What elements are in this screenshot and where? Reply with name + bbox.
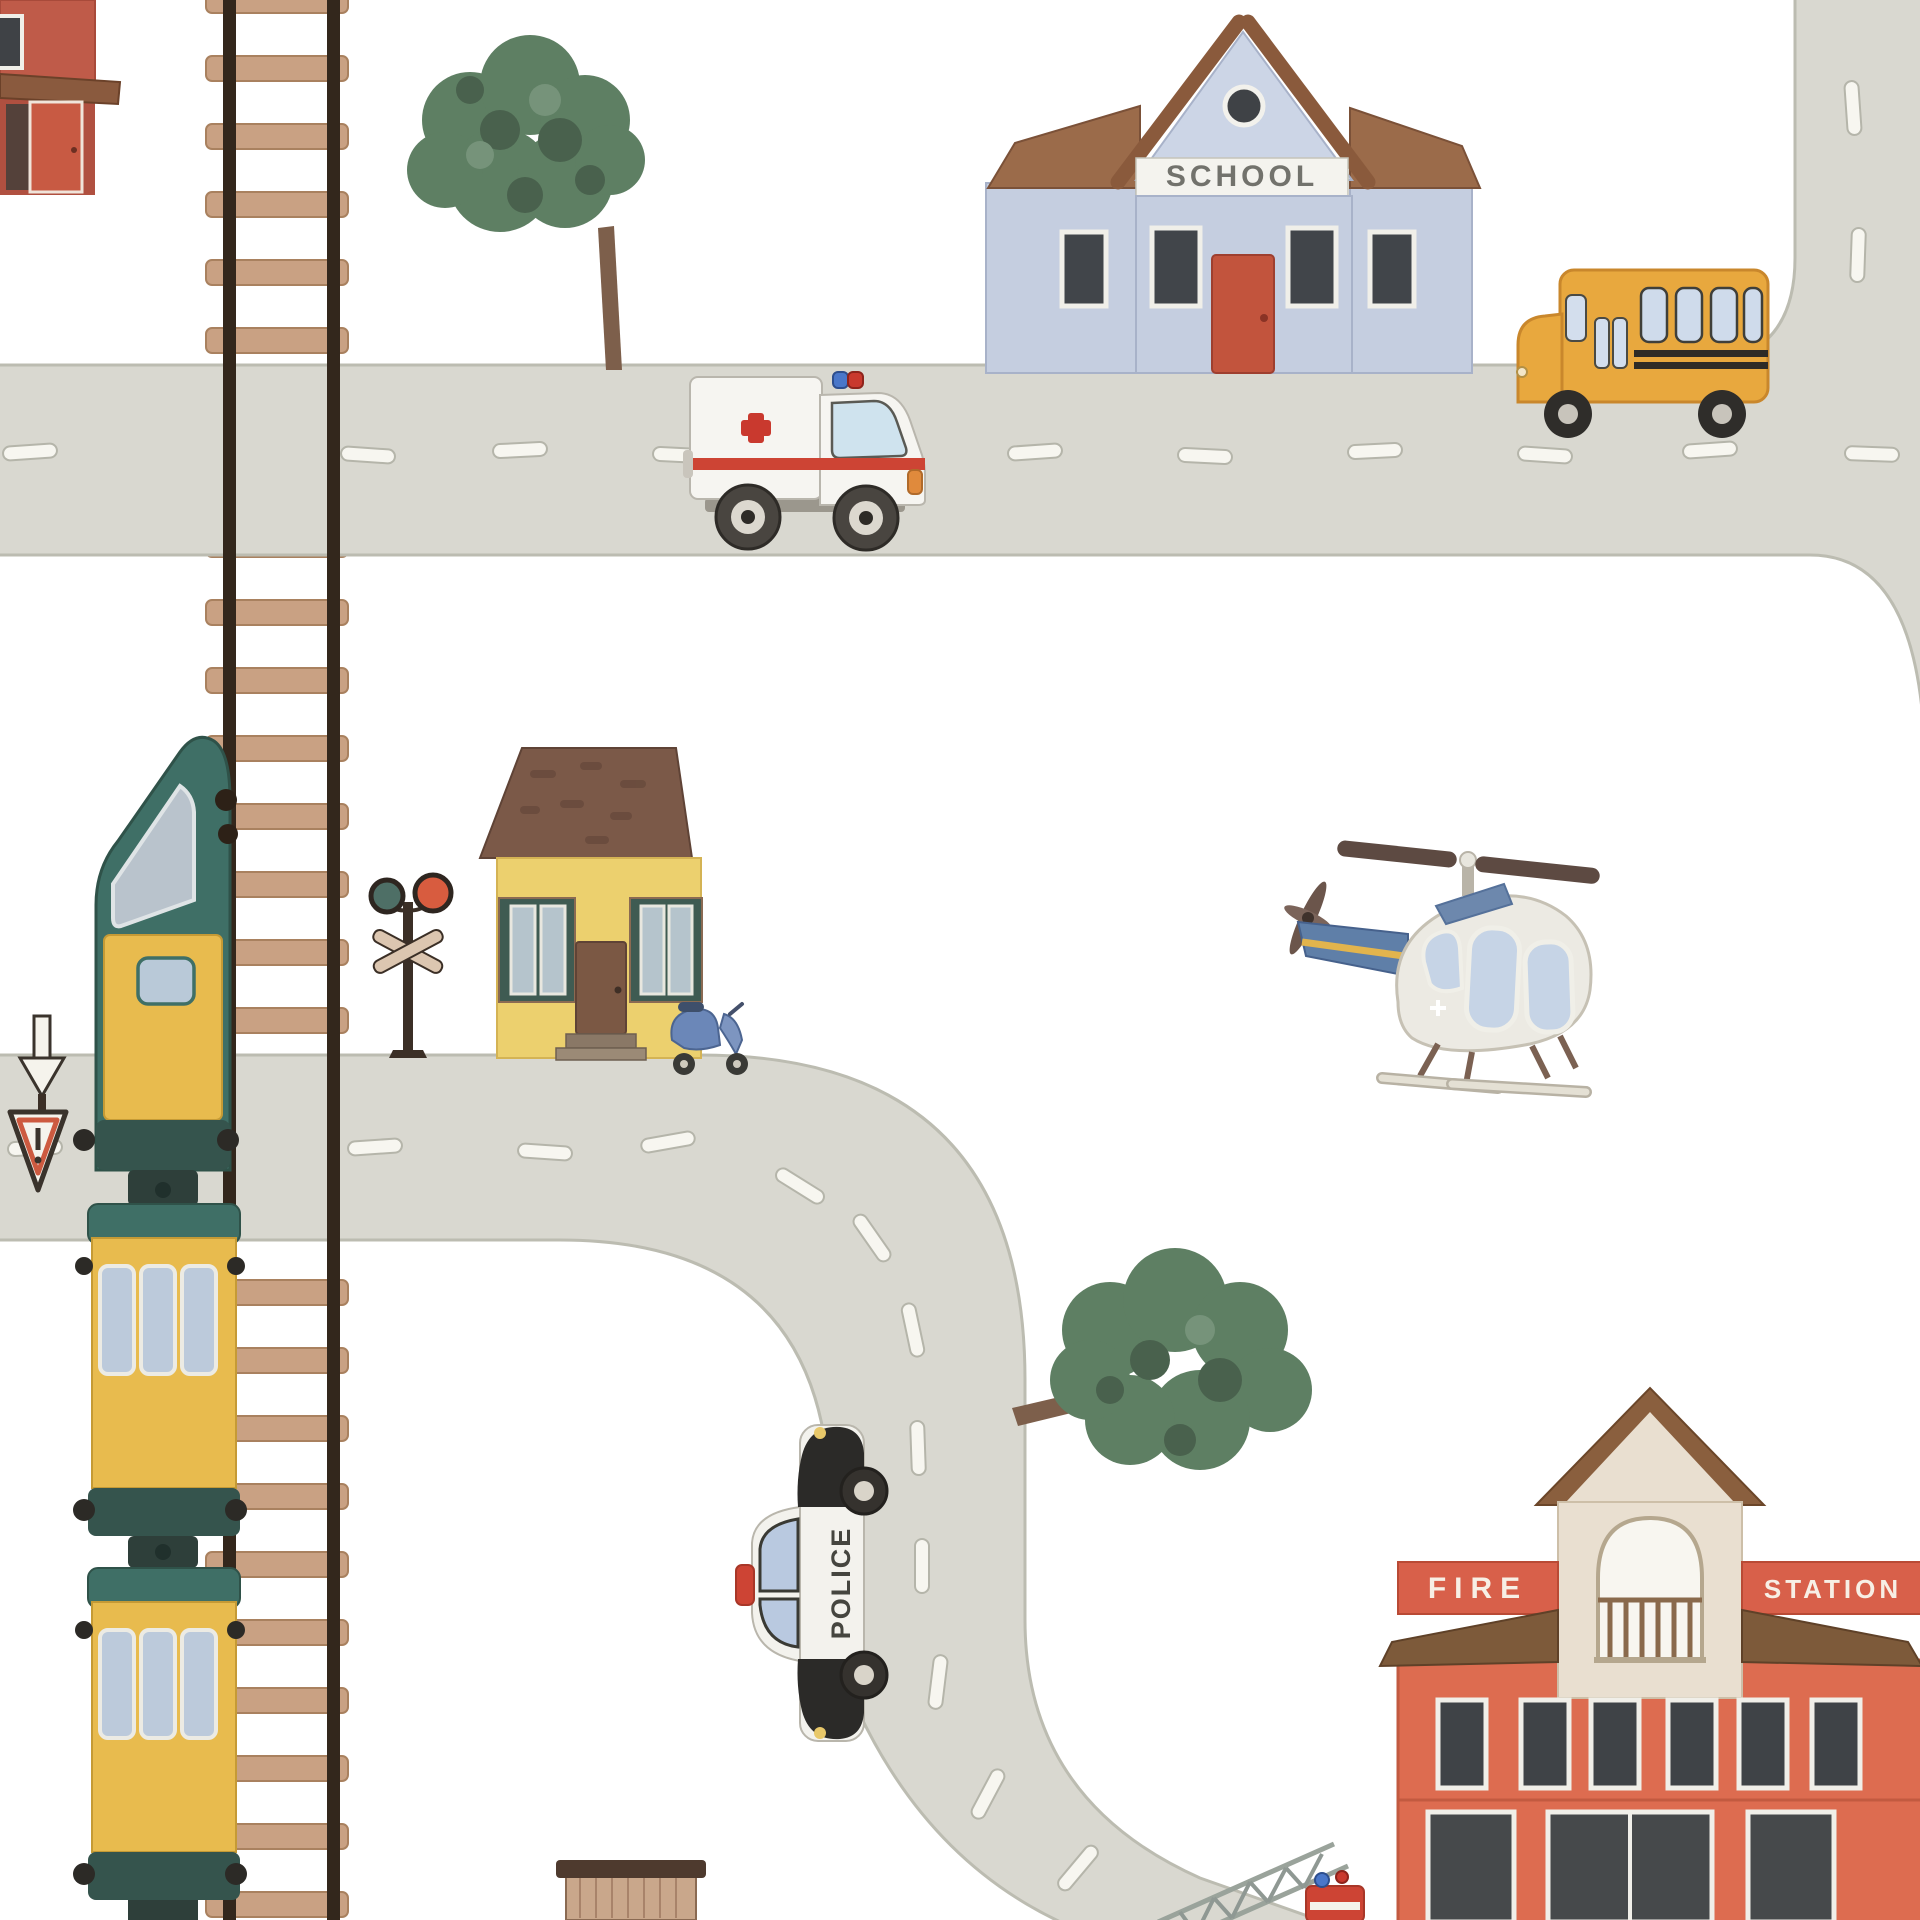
bus-stripe bbox=[1634, 362, 1768, 369]
exclamation-icon bbox=[35, 1157, 42, 1164]
signal-light-red bbox=[415, 875, 451, 911]
skid-strut bbox=[1420, 1044, 1438, 1076]
corner-building bbox=[0, 0, 120, 195]
bus-window bbox=[1641, 288, 1667, 342]
car-window bbox=[141, 1630, 175, 1738]
fire-station: FIRE STATION bbox=[1380, 1388, 1920, 1920]
skid-strut bbox=[1560, 1036, 1576, 1068]
train bbox=[73, 737, 247, 1920]
door-knob bbox=[615, 987, 622, 994]
scooter-handlebar bbox=[730, 1004, 742, 1014]
scooter-seat bbox=[678, 1002, 704, 1012]
front-blinker bbox=[908, 470, 922, 494]
main-rotor-blade bbox=[1336, 840, 1457, 868]
car-window bbox=[100, 1266, 134, 1374]
school-sign: SCHOOL bbox=[1166, 160, 1318, 193]
car-window bbox=[182, 1266, 216, 1374]
dark-doorway bbox=[6, 104, 32, 190]
bus-window bbox=[1676, 288, 1702, 342]
train-wheel bbox=[73, 1499, 95, 1521]
tree-canopy bbox=[407, 35, 645, 232]
wheel-hub bbox=[733, 1060, 741, 1068]
rail-knob bbox=[215, 789, 237, 811]
garage-door bbox=[1428, 1812, 1514, 1920]
rotor-cap bbox=[1460, 852, 1476, 868]
school-door bbox=[1212, 255, 1274, 373]
window-pane bbox=[641, 906, 664, 994]
wheel-hub bbox=[854, 1481, 874, 1501]
train-wheel bbox=[217, 1129, 239, 1151]
tree-canopy bbox=[1050, 1248, 1312, 1470]
round-attic-window bbox=[1225, 87, 1263, 125]
car-window bbox=[182, 1630, 216, 1738]
school-window bbox=[1152, 228, 1200, 306]
train-coupler-knob bbox=[155, 1544, 171, 1560]
truck-light-blue bbox=[1315, 1873, 1329, 1887]
rail-right bbox=[327, 0, 340, 1920]
rail-knob bbox=[218, 824, 238, 844]
yellow-house bbox=[480, 748, 702, 1060]
siren-light-blue bbox=[833, 372, 848, 388]
train-coupler bbox=[128, 1900, 198, 1920]
building-awning bbox=[0, 74, 120, 104]
car-window bbox=[100, 1630, 134, 1738]
helicopter bbox=[1281, 840, 1600, 1092]
city-map-canvas: SCHOOL bbox=[0, 0, 1920, 1920]
door-step bbox=[566, 1034, 636, 1048]
station-sign: STATION bbox=[1764, 1574, 1902, 1604]
bus-hood bbox=[1518, 314, 1562, 402]
main-rotor-blade bbox=[1475, 856, 1601, 885]
door-knob bbox=[71, 147, 77, 153]
car-skirt bbox=[88, 1852, 240, 1900]
police-car: POLICE bbox=[736, 1425, 887, 1741]
scooter-front-shield bbox=[720, 1014, 742, 1054]
wheel-hub bbox=[854, 1665, 874, 1685]
signal-base bbox=[389, 1050, 427, 1058]
round-tree bbox=[407, 35, 645, 370]
school-building: SCHOOL bbox=[986, 22, 1480, 373]
bus-stripe bbox=[1634, 350, 1768, 357]
rear-bumper bbox=[683, 450, 693, 478]
window-pane bbox=[511, 906, 535, 994]
wheel-center bbox=[741, 510, 755, 524]
awning-roof bbox=[1742, 1610, 1920, 1666]
cockpit-window bbox=[1524, 941, 1573, 1033]
signal-light-green bbox=[371, 880, 403, 912]
bus-window bbox=[1744, 288, 1762, 342]
car-skirt bbox=[88, 1488, 240, 1536]
shed-roof-cap bbox=[556, 1860, 706, 1878]
door-knob bbox=[1260, 314, 1268, 322]
door-step bbox=[556, 1048, 646, 1060]
awning-roof bbox=[1380, 1610, 1558, 1666]
wooden-shed bbox=[556, 1860, 706, 1920]
train-wheel bbox=[73, 1863, 95, 1885]
red-cross-icon bbox=[748, 413, 764, 443]
train-wheel bbox=[225, 1499, 247, 1521]
window-pane bbox=[541, 906, 565, 994]
tower-arched-window bbox=[1598, 1518, 1702, 1660]
scooter-body bbox=[671, 1009, 720, 1049]
bus-door-pane bbox=[1613, 318, 1627, 368]
building-door bbox=[30, 102, 82, 192]
wheel-center bbox=[859, 511, 873, 525]
train-wheel bbox=[225, 1863, 247, 1885]
bus-windshield bbox=[1566, 295, 1586, 341]
train-wheel bbox=[73, 1129, 95, 1151]
garage-door bbox=[1748, 1812, 1834, 1920]
locomotive-window bbox=[138, 958, 194, 1004]
train-wheel bbox=[75, 1257, 93, 1275]
bus-wheel-hub bbox=[1712, 404, 1732, 424]
train-coupler-knob bbox=[155, 1182, 171, 1198]
truck-light-red bbox=[1336, 1871, 1348, 1883]
police-taillight bbox=[814, 1727, 826, 1739]
bus-wheel-hub bbox=[1558, 404, 1578, 424]
arrow-shaft bbox=[34, 1016, 50, 1062]
skid-strut bbox=[1532, 1046, 1548, 1078]
car-window bbox=[141, 1266, 175, 1374]
railroad-crossing-signal bbox=[371, 875, 451, 1058]
locomotive-skirt bbox=[96, 1120, 230, 1170]
school-window bbox=[1288, 228, 1336, 306]
window-pane bbox=[669, 906, 692, 994]
bus-door-pane bbox=[1595, 318, 1609, 368]
siren-light-red bbox=[848, 372, 863, 388]
school-window bbox=[1062, 232, 1106, 306]
fire-sign: FIRE bbox=[1428, 1572, 1528, 1605]
train-wheel bbox=[75, 1621, 93, 1639]
city-map-illustration: SCHOOL bbox=[0, 0, 1920, 1920]
train-wheel bbox=[227, 1257, 245, 1275]
police-label: POLICE bbox=[826, 1527, 856, 1640]
bus-window bbox=[1711, 288, 1737, 342]
cockpit-window bbox=[1423, 931, 1462, 991]
ambulance-stripe bbox=[690, 458, 925, 470]
police-roof-light bbox=[736, 1565, 754, 1605]
leafy-tree bbox=[1012, 1248, 1312, 1470]
school-window bbox=[1370, 232, 1414, 306]
cockpit-window bbox=[1465, 927, 1520, 1031]
tree-trunk bbox=[598, 226, 622, 370]
police-headlight bbox=[814, 1427, 826, 1439]
fire-truck-stripe bbox=[1310, 1902, 1360, 1910]
building-window bbox=[0, 16, 22, 68]
train-wheel bbox=[227, 1621, 245, 1639]
wheel-hub bbox=[680, 1060, 688, 1068]
signal-pole bbox=[403, 902, 413, 1050]
bus-headlight bbox=[1517, 367, 1527, 377]
